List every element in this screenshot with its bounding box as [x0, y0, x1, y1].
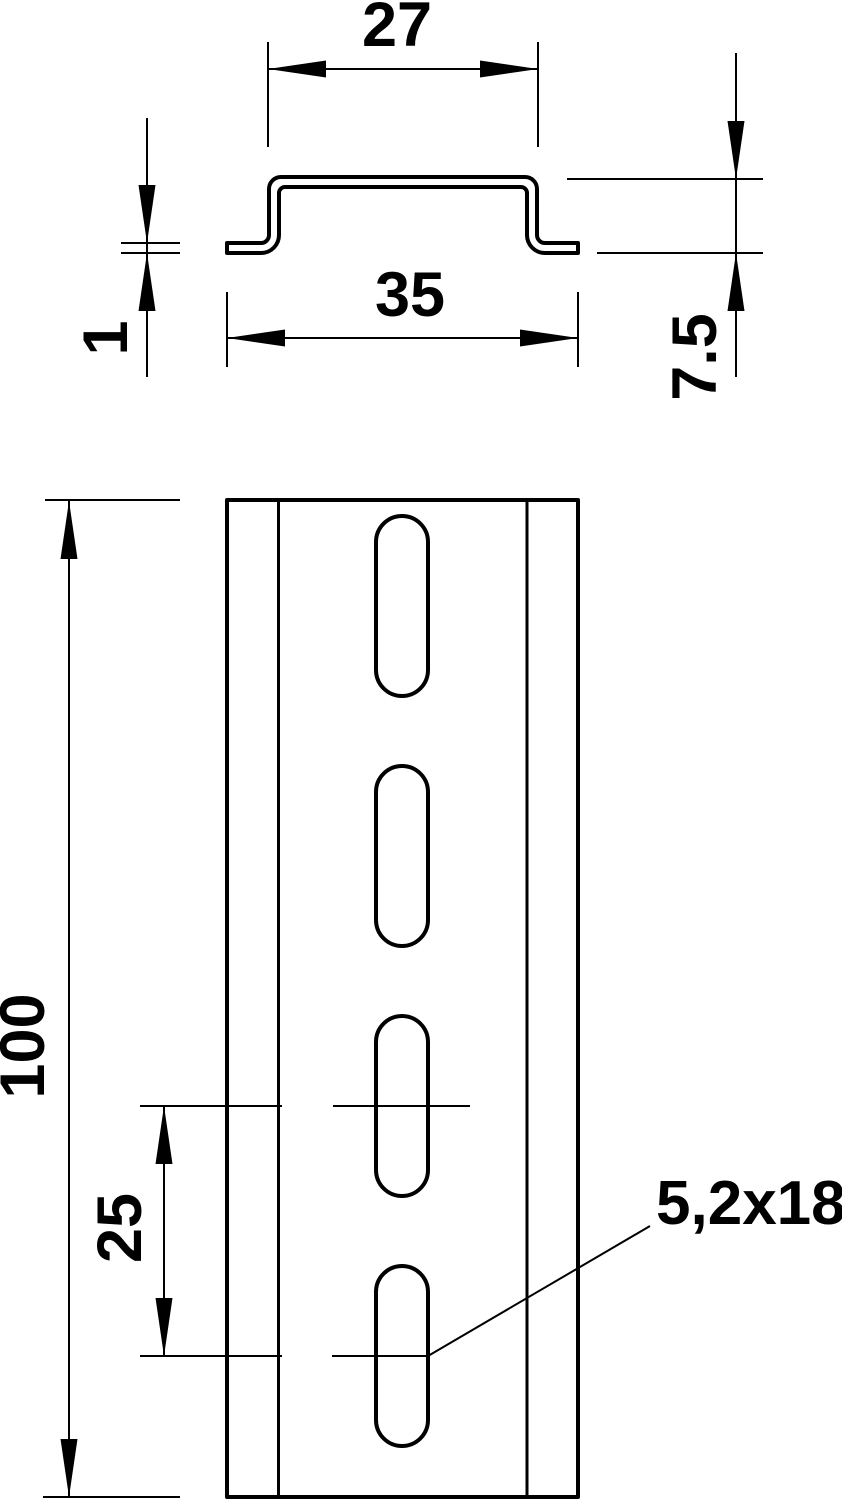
- arrowhead-up: [139, 253, 156, 311]
- front-view: 100 25 5,2x18: [0, 500, 842, 1497]
- dim-label-overall-width: 35: [375, 260, 445, 330]
- arrowhead-left: [227, 330, 285, 347]
- slot-hole-2: [376, 766, 428, 946]
- dim-label-slot-spacing: 25: [85, 1193, 155, 1263]
- arrowhead-up: [61, 501, 78, 559]
- arrowhead-right: [480, 61, 538, 78]
- dim-label-length: 100: [0, 993, 58, 1098]
- rail-profile-outline: [227, 177, 578, 253]
- dim-label-height: 7.5: [660, 313, 730, 401]
- dim-length: 100: [0, 500, 180, 1497]
- dim-slot-spacing: 25: [85, 1106, 173, 1356]
- arrowhead-down: [61, 1439, 78, 1497]
- slot-hole-1: [376, 516, 428, 696]
- dim-label-thickness: 1: [71, 320, 141, 355]
- arrowhead-left: [268, 61, 326, 78]
- cross-section-view: 27 35 7.5: [71, 0, 763, 401]
- dim-thickness: 1: [71, 118, 180, 377]
- dim-top-width: 27: [268, 0, 538, 147]
- arrowhead-down: [156, 1298, 173, 1356]
- slot-size-label: 5,2x18: [656, 1169, 842, 1238]
- dim-overall-width: 35: [227, 260, 578, 367]
- technical-drawing-page: 27 35 7.5: [0, 0, 842, 1500]
- arrowhead-up: [728, 253, 745, 311]
- din-rail-technical-drawing: 27 35 7.5: [0, 0, 842, 1500]
- arrowhead-right: [520, 330, 578, 347]
- dim-height: 7.5: [567, 53, 763, 401]
- arrowhead-up: [156, 1106, 173, 1164]
- arrowhead-down: [139, 185, 156, 243]
- dim-label-top-width: 27: [362, 0, 432, 60]
- arrowhead-down: [728, 121, 745, 179]
